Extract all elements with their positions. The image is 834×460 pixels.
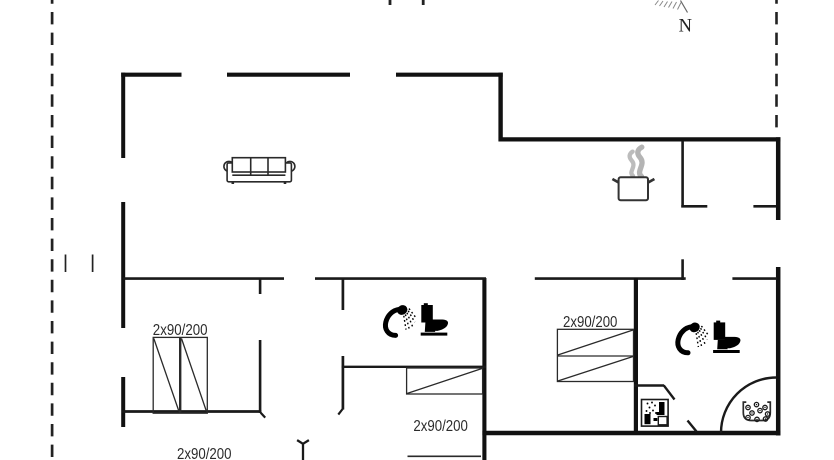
svg-text:2x90/200: 2x90/200 [563, 314, 618, 331]
svg-text:2x90/200: 2x90/200 [153, 322, 208, 339]
svg-text:N: N [679, 16, 692, 36]
svg-text:2x90/200: 2x90/200 [177, 446, 232, 460]
svg-text:2x90/200: 2x90/200 [413, 418, 468, 435]
